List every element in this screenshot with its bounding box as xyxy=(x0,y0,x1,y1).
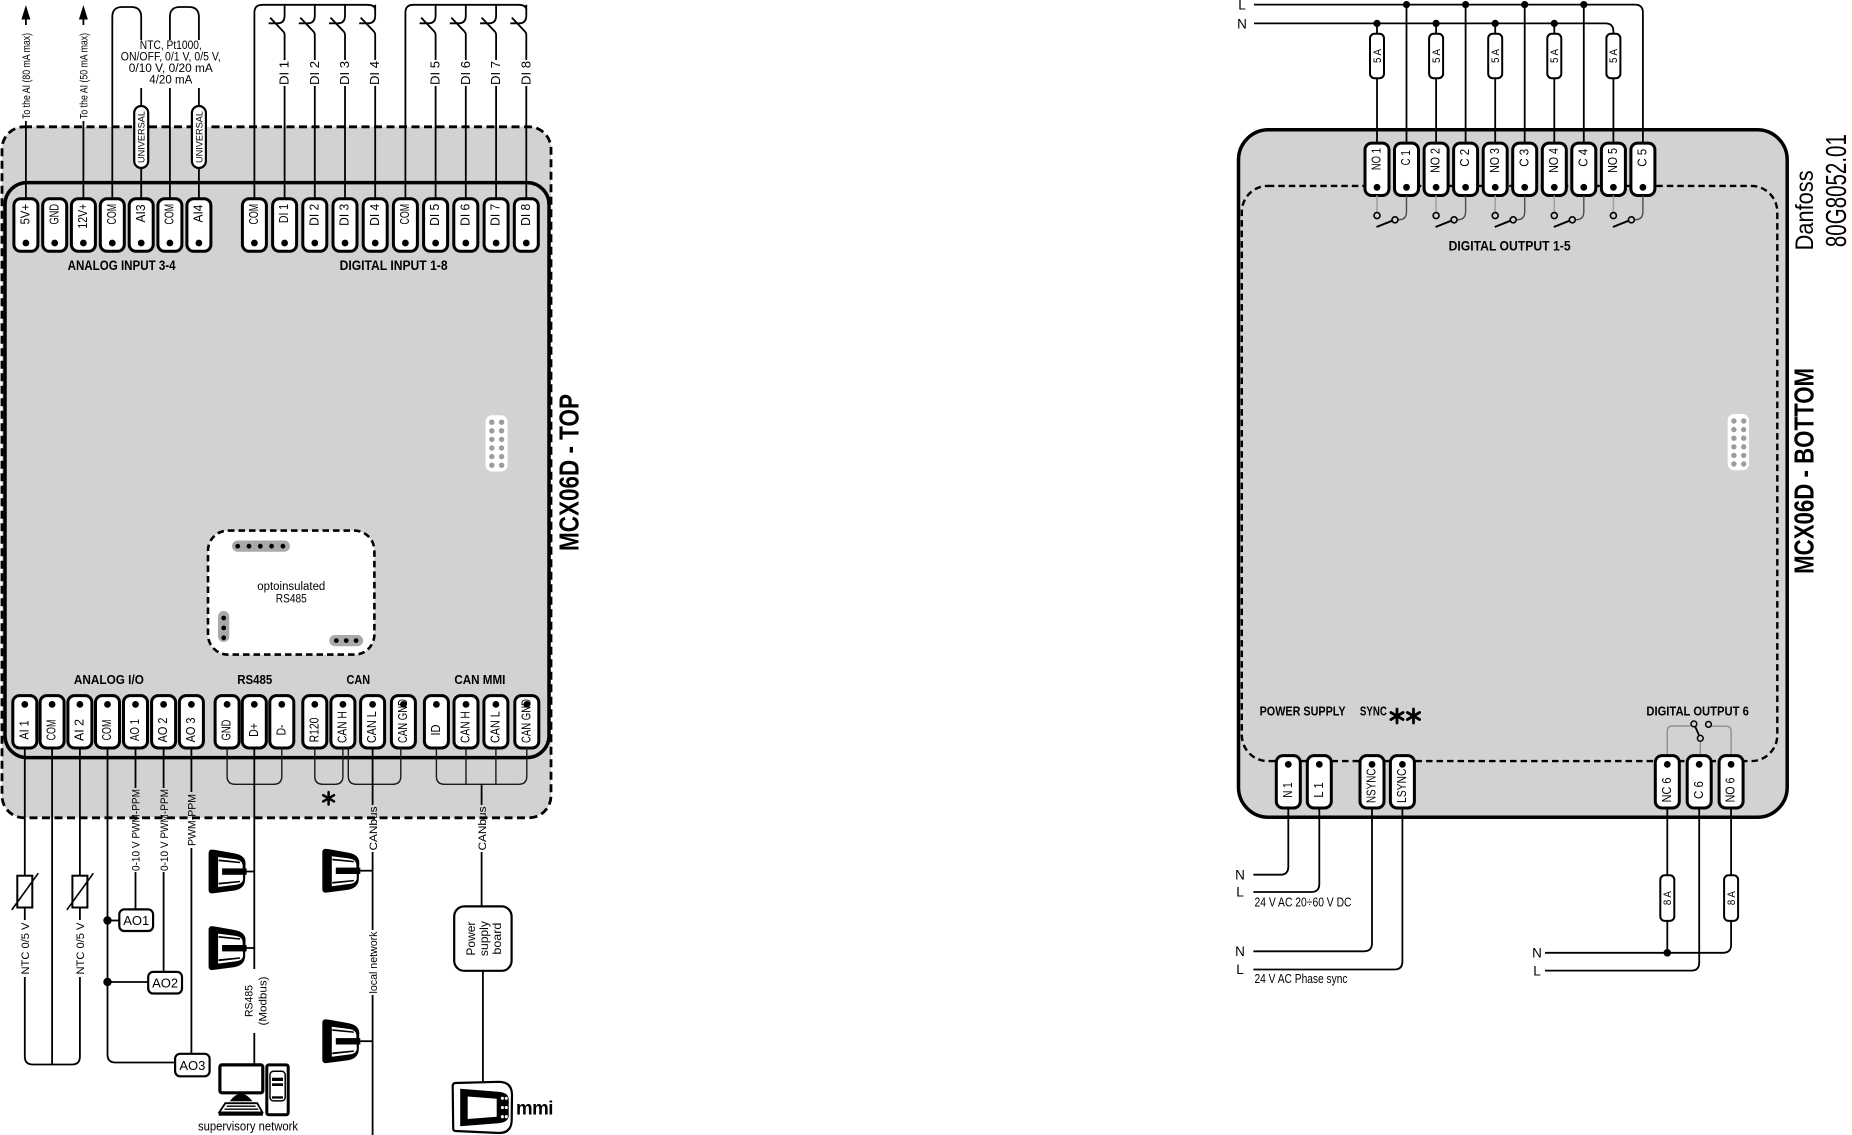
svg-text:CAN H: CAN H xyxy=(458,711,473,743)
svg-text:DI 2: DI 2 xyxy=(307,61,322,85)
svg-text:NTC 0/5 V: NTC 0/5 V xyxy=(75,922,87,975)
svg-text:COM: COM xyxy=(44,720,59,741)
svg-text:8 A: 8 A xyxy=(1662,891,1674,906)
svg-text:D+: D+ xyxy=(246,723,261,737)
svg-text:CAN L: CAN L xyxy=(364,711,379,743)
svg-text:C 5: C 5 xyxy=(1635,149,1650,167)
svg-text:MCX06D - TOP: MCX06D - TOP xyxy=(554,394,585,551)
svg-text:R120: R120 xyxy=(306,718,321,743)
svg-text:0-10 V PWM-PPM: 0-10 V PWM-PPM xyxy=(131,789,143,871)
svg-text:ON/OFF, 0/1 V, 0/5 V,: ON/OFF, 0/1 V, 0/5 V, xyxy=(121,52,221,64)
svg-text:ID: ID xyxy=(428,724,443,735)
svg-text:local network: local network xyxy=(368,931,380,993)
svg-text:N: N xyxy=(1235,868,1245,883)
svg-text:ANALOG INPUT 3-4: ANALOG INPUT 3-4 xyxy=(68,258,176,273)
svg-text:COM: COM xyxy=(104,204,119,225)
svg-text:AI 1: AI 1 xyxy=(16,720,31,739)
svg-text:5 A: 5 A xyxy=(1608,48,1620,63)
svg-text:NO 3: NO 3 xyxy=(1487,148,1502,173)
svg-text:5V+: 5V+ xyxy=(18,204,33,225)
svg-text:DI 7: DI 7 xyxy=(488,204,503,226)
svg-text:AO 2: AO 2 xyxy=(155,718,170,743)
svg-text:(Modbus): (Modbus) xyxy=(258,977,270,1026)
svg-text:NO 2: NO 2 xyxy=(1428,148,1443,173)
svg-text:mmi: mmi xyxy=(516,1099,553,1120)
svg-text:24 V AC Phase sync: 24 V AC Phase sync xyxy=(1255,971,1348,986)
svg-text:GND: GND xyxy=(219,720,234,741)
svg-text:L: L xyxy=(1236,962,1244,977)
svg-text:CAN H: CAN H xyxy=(335,711,350,743)
svg-text:DI 6: DI 6 xyxy=(457,204,472,226)
svg-text:NO 1: NO 1 xyxy=(1369,148,1384,170)
svg-text:DI 7: DI 7 xyxy=(488,61,503,85)
svg-text:AO1: AO1 xyxy=(123,913,149,928)
svg-text:DI 3: DI 3 xyxy=(337,204,352,226)
svg-text:C 2: C 2 xyxy=(1457,149,1472,167)
svg-text:AO2: AO2 xyxy=(152,975,178,990)
svg-text:supply: supply xyxy=(477,921,491,956)
svg-text:12V+: 12V+ xyxy=(75,204,90,229)
svg-text:DI 3: DI 3 xyxy=(337,61,352,85)
svg-text:AI4: AI4 xyxy=(191,205,206,223)
svg-text:DI 6: DI 6 xyxy=(458,61,473,85)
svg-text:AI 2: AI 2 xyxy=(72,719,87,741)
svg-text:NTC 0/5 V: NTC 0/5 V xyxy=(20,922,32,975)
svg-text:DI 2: DI 2 xyxy=(306,204,321,226)
svg-text:CAN GND: CAN GND xyxy=(395,699,410,743)
svg-text:N: N xyxy=(1532,946,1542,961)
svg-text:CAN L: CAN L xyxy=(488,711,503,743)
svg-text:SYNC: SYNC xyxy=(1360,704,1387,719)
svg-text:board: board xyxy=(490,923,504,955)
svg-text:NTC, Pt1000,: NTC, Pt1000, xyxy=(140,40,202,52)
svg-text:To the AI (80 mA max): To the AI (80 mA max) xyxy=(21,33,33,119)
svg-text:C 3: C 3 xyxy=(1516,149,1531,167)
svg-text:COM: COM xyxy=(397,204,412,225)
svg-text:8 A: 8 A xyxy=(1726,891,1738,906)
svg-text:CAN: CAN xyxy=(347,672,371,687)
svg-text:UNIVERSAL: UNIVERSAL xyxy=(137,111,148,163)
svg-text:80G8052.01: 80G8052.01 xyxy=(1821,134,1852,247)
svg-text:5 A: 5 A xyxy=(1431,48,1443,63)
svg-text:Power: Power xyxy=(464,922,478,956)
svg-text:ANALOG I/O: ANALOG I/O xyxy=(74,672,144,687)
svg-text:N 1: N 1 xyxy=(1280,782,1295,797)
svg-text:AO3: AO3 xyxy=(179,1058,205,1073)
svg-text:RS485: RS485 xyxy=(276,594,307,606)
svg-text:DI 8: DI 8 xyxy=(518,204,533,226)
svg-text:DIGITAL OUTPUT 6: DIGITAL OUTPUT 6 xyxy=(1646,704,1749,719)
svg-text:CANbus: CANbus xyxy=(477,806,489,851)
svg-text:UNIVERSAL: UNIVERSAL xyxy=(194,111,205,163)
svg-text:DI 4: DI 4 xyxy=(367,204,382,226)
svg-text:DI 5: DI 5 xyxy=(427,204,442,226)
svg-text:DI 4: DI 4 xyxy=(367,61,382,85)
svg-text:To the AI (50 mA max): To the AI (50 mA max) xyxy=(79,33,91,119)
svg-text:AI3: AI3 xyxy=(133,205,148,223)
svg-text:LSYNC: LSYNC xyxy=(1394,769,1409,804)
svg-text:CANbus: CANbus xyxy=(368,806,380,851)
svg-text:L: L xyxy=(1533,963,1541,978)
svg-text:GND: GND xyxy=(46,204,61,225)
svg-text:N: N xyxy=(1235,944,1245,959)
svg-text:CAN GND: CAN GND xyxy=(518,699,533,743)
svg-text:AO 3: AO 3 xyxy=(183,718,198,743)
svg-text:L: L xyxy=(1236,885,1244,900)
svg-text:0/10 V, 0/20 mA: 0/10 V, 0/20 mA xyxy=(129,63,213,75)
svg-text:RS485: RS485 xyxy=(244,985,256,1017)
svg-text:DIGITAL INPUT 1-8: DIGITAL INPUT 1-8 xyxy=(340,258,448,273)
svg-text:NC 6: NC 6 xyxy=(1659,778,1674,803)
svg-text:CAN MMI: CAN MMI xyxy=(454,672,505,687)
svg-text:optoinsulated: optoinsulated xyxy=(257,581,325,593)
svg-text:N: N xyxy=(1237,16,1247,31)
svg-text:NSYNC: NSYNC xyxy=(1364,769,1379,804)
svg-text:5 A: 5 A xyxy=(1490,48,1502,63)
svg-text:DI 1: DI 1 xyxy=(277,61,292,85)
svg-text:C 6: C 6 xyxy=(1691,781,1706,799)
svg-text:DI 1: DI 1 xyxy=(276,204,291,223)
svg-text:DIGITAL OUTPUT 1-5: DIGITAL OUTPUT 1-5 xyxy=(1449,239,1571,254)
svg-text:COM: COM xyxy=(99,720,114,741)
svg-text:5 A: 5 A xyxy=(1372,48,1384,63)
svg-text:COM: COM xyxy=(162,204,177,225)
svg-text:MCX06D - BOTTOM: MCX06D - BOTTOM xyxy=(1789,368,1820,574)
svg-text:RS485: RS485 xyxy=(237,672,272,687)
svg-text:Danfoss: Danfoss xyxy=(1791,170,1819,250)
svg-text:C 1: C 1 xyxy=(1398,150,1413,165)
svg-text:NO 4: NO 4 xyxy=(1546,148,1561,173)
svg-text:L: L xyxy=(1238,0,1246,13)
svg-text:NO 6: NO 6 xyxy=(1723,778,1738,803)
svg-text:0-10 V PWM-PPM: 0-10 V PWM-PPM xyxy=(159,789,171,871)
svg-text:D-: D- xyxy=(273,724,288,735)
svg-text:supervisory network: supervisory network xyxy=(198,1119,298,1134)
svg-text:PWM-PPM: PWM-PPM xyxy=(187,794,199,846)
svg-text:AO 1: AO 1 xyxy=(127,719,142,741)
svg-text:NO 5: NO 5 xyxy=(1605,148,1620,173)
svg-text:24 V AC 20÷60 V DC: 24 V AC 20÷60 V DC xyxy=(1255,895,1352,910)
svg-text:DI 8: DI 8 xyxy=(518,61,533,85)
svg-text:DI 5: DI 5 xyxy=(428,61,443,85)
svg-text:L 1: L 1 xyxy=(1311,782,1326,797)
svg-text:4/20 mA: 4/20 mA xyxy=(149,75,192,87)
svg-text:COM: COM xyxy=(246,204,261,225)
svg-text:POWER SUPPLY: POWER SUPPLY xyxy=(1260,704,1346,719)
svg-text:C 4: C 4 xyxy=(1575,149,1590,167)
svg-text:5 A: 5 A xyxy=(1549,48,1561,63)
